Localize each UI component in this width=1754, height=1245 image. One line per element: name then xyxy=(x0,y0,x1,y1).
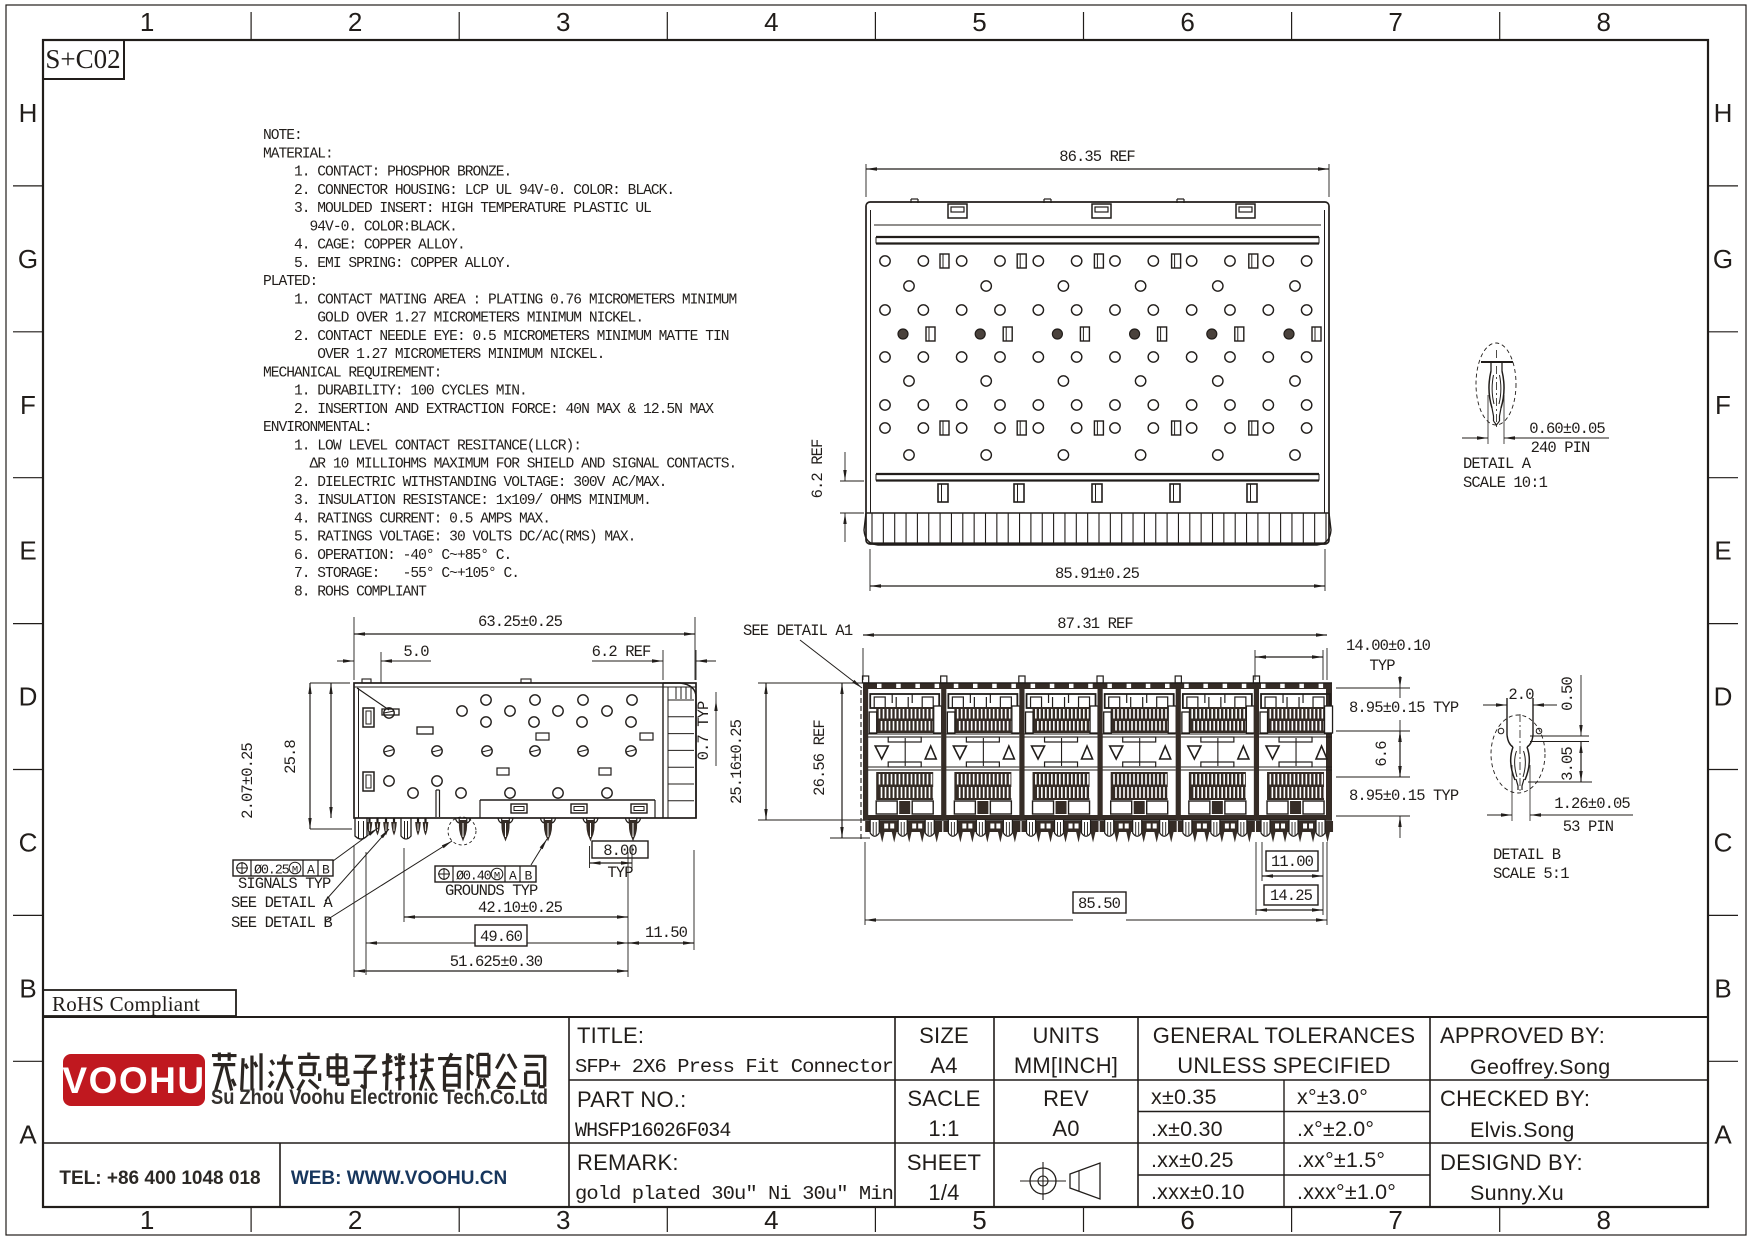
svg-text:8: 8 xyxy=(1597,1205,1611,1235)
svg-text:.xx°±1.5°: .xx°±1.5° xyxy=(1297,1148,1385,1172)
svg-text:G: G xyxy=(18,244,38,274)
svg-text:1: 1 xyxy=(140,1205,154,1235)
svg-text:SEE DETAIL A: SEE DETAIL A xyxy=(231,894,333,912)
svg-text:5: 5 xyxy=(972,7,986,37)
svg-text:SACLE: SACLE xyxy=(907,1086,980,1111)
svg-text:Elvis.Song: Elvis.Song xyxy=(1470,1118,1575,1142)
svg-text:REV: REV xyxy=(1043,1086,1089,1111)
svg-text:2: 2 xyxy=(348,7,362,37)
svg-text:UNLESS SPECIFIED: UNLESS SPECIFIED xyxy=(1177,1053,1390,1078)
svg-text:WEB: WWW.VOOHU.CN: WEB: WWW.VOOHU.CN xyxy=(291,1168,507,1189)
svg-text:6: 6 xyxy=(1180,7,1194,37)
svg-text:1. LOW LEVEL CONTACT RESITANCE: 1. LOW LEVEL CONTACT RESITANCE(LLCR): xyxy=(263,438,581,454)
svg-text:7: 7 xyxy=(1388,1205,1402,1235)
svg-text:PART NO.:: PART NO.: xyxy=(577,1087,686,1112)
svg-text:REMARK:: REMARK: xyxy=(577,1150,679,1175)
svg-text:26.56 REF: 26.56 REF xyxy=(811,720,829,796)
svg-text:.xxx°±1.0°: .xxx°±1.0° xyxy=(1297,1180,1396,1204)
svg-text:APPROVED BY:: APPROVED BY: xyxy=(1440,1023,1605,1048)
svg-text:7: 7 xyxy=(1388,7,1402,37)
svg-text:51.625±0.30: 51.625±0.30 xyxy=(450,953,543,971)
svg-text:1/4: 1/4 xyxy=(928,1180,959,1205)
svg-text:x°±3.0°: x°±3.0° xyxy=(1297,1085,1368,1109)
svg-text:CHECKED BY:: CHECKED BY: xyxy=(1440,1086,1590,1111)
svg-text:25.8: 25.8 xyxy=(282,740,300,774)
svg-text:SCALE 5:1: SCALE 5:1 xyxy=(1493,865,1569,883)
svg-text:8: 8 xyxy=(1597,7,1611,37)
svg-text:6: 6 xyxy=(1180,1205,1194,1235)
svg-text:8. ROHS COMPLIANT: 8. ROHS COMPLIANT xyxy=(263,584,427,600)
svg-text:gold plated 30u" Ni 30u" Min: gold plated 30u" Ni 30u" Min xyxy=(575,1183,893,1205)
svg-text:8.95±0.15 TYP: 8.95±0.15 TYP xyxy=(1349,787,1459,805)
svg-text:3. INSULATION RESISTANCE: 1x10: 3. INSULATION RESISTANCE: 1x109/ OHMS MI… xyxy=(263,493,651,509)
svg-text:SHEET: SHEET xyxy=(907,1150,981,1175)
svg-text:7. STORAGE: -55° C~+105° C.: 7. STORAGE: -55° C~+105° C. xyxy=(263,566,519,582)
svg-text:F: F xyxy=(20,390,36,420)
svg-text:DETAIL B: DETAIL B xyxy=(1493,846,1561,864)
svg-text:Sunny.Xu: Sunny.Xu xyxy=(1470,1181,1564,1205)
svg-text:SEE DETAIL B: SEE DETAIL B xyxy=(231,914,332,932)
svg-text:ENVIRONMENTAL:: ENVIRONMENTAL: xyxy=(263,420,372,436)
svg-text:4. CAGE: COPPER ALLOY.: 4. CAGE: COPPER ALLOY. xyxy=(263,238,465,254)
svg-text:25.16±0.25: 25.16±0.25 xyxy=(728,719,746,804)
svg-text:D: D xyxy=(1714,682,1733,712)
svg-text:2.07±0.25: 2.07±0.25 xyxy=(239,743,257,819)
svg-text:RoHS Compliant: RoHS Compliant xyxy=(52,992,200,1016)
svg-text:MM[INCH]: MM[INCH] xyxy=(1014,1053,1118,1078)
svg-text:SEE DETAIL A1: SEE DETAIL A1 xyxy=(743,622,853,640)
svg-text:5. RATINGS VOLTAGE: 30 VOLTS D: 5. RATINGS VOLTAGE: 30 VOLTS DC/AC(RMS) … xyxy=(263,530,635,546)
svg-text:S+C02: S+C02 xyxy=(45,44,120,74)
svg-text:14.00±0.10: 14.00±0.10 xyxy=(1346,637,1431,655)
svg-text:PLATED:: PLATED: xyxy=(263,274,317,290)
svg-text:2: 2 xyxy=(348,1205,362,1235)
svg-text:MATERIAL:: MATERIAL: xyxy=(263,146,333,162)
svg-text:MECHANICAL REQUIREMENT:: MECHANICAL REQUIREMENT: xyxy=(263,365,441,381)
svg-text:UNITS: UNITS xyxy=(1033,1023,1100,1048)
svg-text:H: H xyxy=(19,98,38,128)
svg-text:3: 3 xyxy=(556,7,570,37)
svg-text:1: 1 xyxy=(140,7,154,37)
svg-text:14.25: 14.25 xyxy=(1270,887,1313,905)
svg-text:5.0: 5.0 xyxy=(403,643,429,661)
svg-text:86.35 REF: 86.35 REF xyxy=(1059,148,1135,166)
svg-text:0.50: 0.50 xyxy=(1559,677,1577,711)
svg-text:5. EMI SPRING: COPPER ALLOY.: 5. EMI SPRING: COPPER ALLOY. xyxy=(263,256,511,272)
svg-text:2. INSERTION AND EXTRACTION FO: 2. INSERTION AND EXTRACTION FORCE: 40N M… xyxy=(263,402,714,418)
svg-text:GOLD OVER 1.27 MICROMETERS MIN: GOLD OVER 1.27 MICROMETERS MINIMUM NICKE… xyxy=(263,311,643,327)
svg-text:3: 3 xyxy=(556,1205,570,1235)
svg-text:NOTE:: NOTE: xyxy=(263,128,302,144)
svg-text:B: B xyxy=(1714,973,1731,1003)
svg-text:63.25±0.25: 63.25±0.25 xyxy=(478,613,563,631)
svg-text:TYP: TYP xyxy=(1369,657,1395,675)
svg-text:6.2 REF: 6.2 REF xyxy=(809,439,827,498)
svg-text:1. DURABILITY: 100 CYCLES MIN.: 1. DURABILITY: 100 CYCLES MIN. xyxy=(263,384,527,400)
svg-text:85.91±0.25: 85.91±0.25 xyxy=(1055,565,1140,583)
svg-text:C: C xyxy=(19,827,38,857)
svg-text:.x°±2.0°: .x°±2.0° xyxy=(1297,1117,1374,1141)
svg-text:42.10±0.25: 42.10±0.25 xyxy=(478,899,563,917)
svg-text:53 PIN: 53 PIN xyxy=(1563,818,1614,836)
svg-text:.xx±0.25: .xx±0.25 xyxy=(1151,1148,1234,1172)
svg-text:E: E xyxy=(19,536,36,566)
svg-text:TITLE:: TITLE: xyxy=(577,1023,644,1048)
svg-text:2. CONNECTOR HOUSING: LCP UL 9: 2. CONNECTOR HOUSING: LCP UL 94V-0. COLO… xyxy=(263,183,674,199)
svg-text:TEL: +86 400 1048 018: TEL: +86 400 1048 018 xyxy=(59,1168,260,1189)
svg-text:6.2 REF: 6.2 REF xyxy=(592,643,651,661)
svg-text:3.05: 3.05 xyxy=(1559,747,1577,781)
svg-text:240 PIN: 240 PIN xyxy=(1531,439,1590,457)
svg-text:2. CONTACT NEEDLE EYE: 0.5 MIC: 2. CONTACT NEEDLE EYE: 0.5 MICROMETERS M… xyxy=(263,329,729,345)
svg-text:2. DIELECTRIC WITHSTANDING VOL: 2. DIELECTRIC WITHSTANDING VOLTAGE: 300V… xyxy=(263,475,666,491)
svg-text:SCALE 10:1: SCALE 10:1 xyxy=(1463,474,1548,492)
svg-text:5: 5 xyxy=(972,1205,986,1235)
svg-text:G: G xyxy=(1713,244,1733,274)
svg-text:A: A xyxy=(19,1119,37,1149)
svg-text:.x±0.30: .x±0.30 xyxy=(1151,1117,1223,1141)
svg-text:85.50: 85.50 xyxy=(1078,895,1121,913)
svg-text:F: F xyxy=(1715,390,1731,420)
svg-text:A4: A4 xyxy=(930,1053,957,1078)
svg-text:4: 4 xyxy=(764,1205,778,1235)
svg-text:49.60: 49.60 xyxy=(480,928,523,946)
svg-text:1:1: 1:1 xyxy=(928,1116,959,1141)
svg-text:0.60±0.05: 0.60±0.05 xyxy=(1529,420,1605,438)
svg-text:4. RATINGS CURRENT: 0.5 AMPS M: 4. RATINGS CURRENT: 0.5 AMPS MAX. xyxy=(263,511,550,527)
svg-text:x±0.35: x±0.35 xyxy=(1151,1085,1217,1109)
svg-text:GENERAL TOLERANCES: GENERAL TOLERANCES xyxy=(1153,1023,1415,1048)
svg-text:OVER 1.27 MICROMETERS MINIMUM: OVER 1.27 MICROMETERS MINIMUM NICKEL. xyxy=(263,347,604,363)
svg-text:GROUNDS TYP: GROUNDS TYP xyxy=(445,882,538,900)
svg-text:VOOHU: VOOHU xyxy=(62,1060,205,1101)
svg-text:A0: A0 xyxy=(1052,1116,1079,1141)
svg-text:.xxx±0.10: .xxx±0.10 xyxy=(1151,1180,1245,1204)
svg-text:TYP: TYP xyxy=(607,864,633,882)
svg-text:SIGNALS TYP: SIGNALS TYP xyxy=(238,875,331,893)
svg-text:3. MOULDED INSERT: HIGH TEMPER: 3. MOULDED INSERT: HIGH TEMPERATURE PLAS… xyxy=(263,201,651,217)
svg-text:1.26±0.05: 1.26±0.05 xyxy=(1554,795,1630,813)
svg-text:0.7 TYP: 0.7 TYP xyxy=(695,701,713,760)
svg-text:ΔR 10 MILLIOHMS MAXIMUM FOR SH: ΔR 10 MILLIOHMS MAXIMUM FOR SHIELD AND S… xyxy=(263,457,736,473)
svg-text:11.00: 11.00 xyxy=(1271,853,1314,871)
svg-text:11.50: 11.50 xyxy=(645,924,688,942)
svg-text:H: H xyxy=(1714,98,1733,128)
svg-text:DESIGND BY:: DESIGND BY: xyxy=(1440,1150,1583,1175)
svg-text:M: M xyxy=(494,871,500,883)
svg-text:2.0: 2.0 xyxy=(1508,686,1534,704)
svg-text:8.95±0.15 TYP: 8.95±0.15 TYP xyxy=(1349,699,1459,717)
svg-text:1. CONTACT MATING AREA : PLATI: 1. CONTACT MATING AREA : PLATING 0.76 MI… xyxy=(263,292,736,308)
svg-text:94V-0. COLOR:BLACK.: 94V-0. COLOR:BLACK. xyxy=(263,219,457,235)
svg-text:Su Zhou Voohu Electronic Tech.: Su Zhou Voohu Electronic Tech.Co.Ltd xyxy=(211,1086,548,1109)
svg-text:D: D xyxy=(19,682,38,712)
svg-text:DETAIL A: DETAIL A xyxy=(1463,455,1532,473)
svg-text:1. CONTACT: PHOSPHOR BRONZE.: 1. CONTACT: PHOSPHOR BRONZE. xyxy=(263,165,511,181)
svg-text:SFP+ 2X6 Press Fit Connector: SFP+ 2X6 Press Fit Connector xyxy=(575,1056,893,1078)
svg-text:4: 4 xyxy=(764,7,778,37)
svg-text:C: C xyxy=(1714,827,1733,857)
svg-text:B: B xyxy=(19,973,36,1003)
svg-text:87.31 REF: 87.31 REF xyxy=(1057,615,1133,633)
svg-text:SIZE: SIZE xyxy=(919,1023,969,1048)
svg-text:6.6: 6.6 xyxy=(1373,741,1391,767)
svg-text:A: A xyxy=(1714,1119,1732,1149)
svg-text:E: E xyxy=(1714,536,1731,566)
svg-text:Geoffrey.Song: Geoffrey.Song xyxy=(1470,1055,1611,1079)
svg-text:6. OPERATION: -40° C~+85° C.: 6. OPERATION: -40° C~+85° C. xyxy=(263,548,511,564)
svg-text:WHSFP16026F034: WHSFP16026F034 xyxy=(575,1120,730,1143)
